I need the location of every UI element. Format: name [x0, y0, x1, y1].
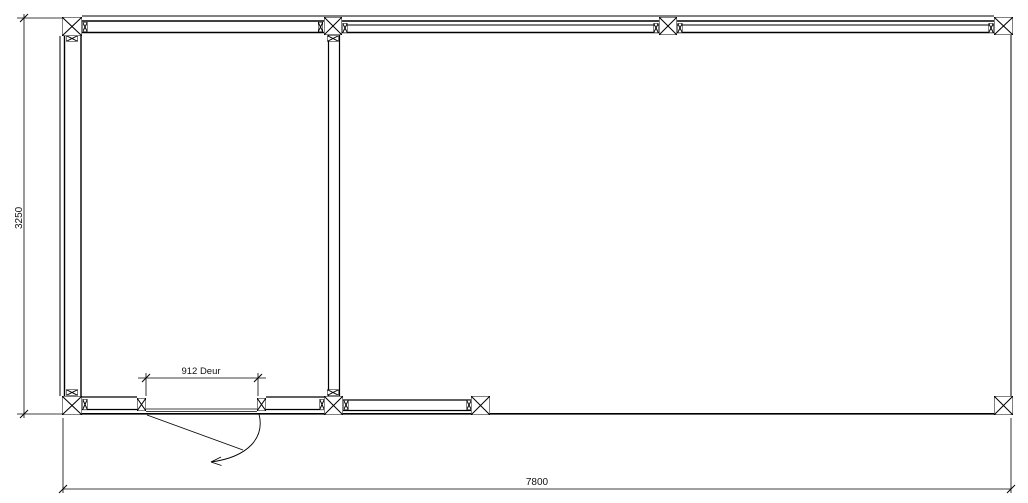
brace-icon	[83, 22, 88, 32]
brace-icon	[320, 399, 325, 410]
post-top-mid-left	[324, 17, 342, 35]
drawing-sheet: 3250 7800 912 Deur	[0, 0, 1028, 503]
brace-icon	[989, 23, 994, 33]
top-wall	[82, 16, 994, 33]
door-jamb-icon	[137, 398, 146, 411]
door-swing	[147, 414, 260, 466]
door-threshold	[146, 409, 257, 412]
door-jamb-icon	[257, 398, 266, 411]
bottom-wall	[82, 397, 324, 410]
brace-icon	[83, 399, 88, 410]
brace-icon	[327, 36, 339, 42]
arrowhead-icon	[211, 462, 222, 466]
brace-icon	[66, 390, 78, 396]
floor-plan-canvas: 3250 7800 912 Deur	[0, 0, 1028, 503]
railing	[343, 400, 471, 411]
brace-icon	[344, 400, 349, 410]
brace-icon	[318, 22, 323, 32]
brace-icon	[66, 36, 78, 42]
post-top-right	[994, 17, 1013, 35]
dim-width-label: 7800	[526, 477, 549, 488]
brace-icon	[327, 390, 339, 396]
post-bottom-left	[62, 396, 82, 415]
post-bottom-right	[994, 396, 1013, 415]
left-wall	[60, 36, 81, 396]
connector-braces	[66, 22, 994, 411]
post-bottom-mid-left	[324, 396, 343, 415]
post-top-left	[62, 17, 82, 36]
dim-height-label: 3250	[14, 206, 25, 229]
brace-icon	[654, 23, 659, 33]
brace-icon	[678, 23, 683, 33]
brace-icon	[343, 23, 348, 33]
brace-icon	[467, 400, 472, 410]
posts	[62, 17, 1013, 415]
dim-door-label: 912 Deur	[181, 366, 220, 377]
post-top-mid-right	[659, 17, 677, 35]
room-right-wall	[329, 35, 340, 396]
post-bottom-mid	[471, 396, 490, 415]
